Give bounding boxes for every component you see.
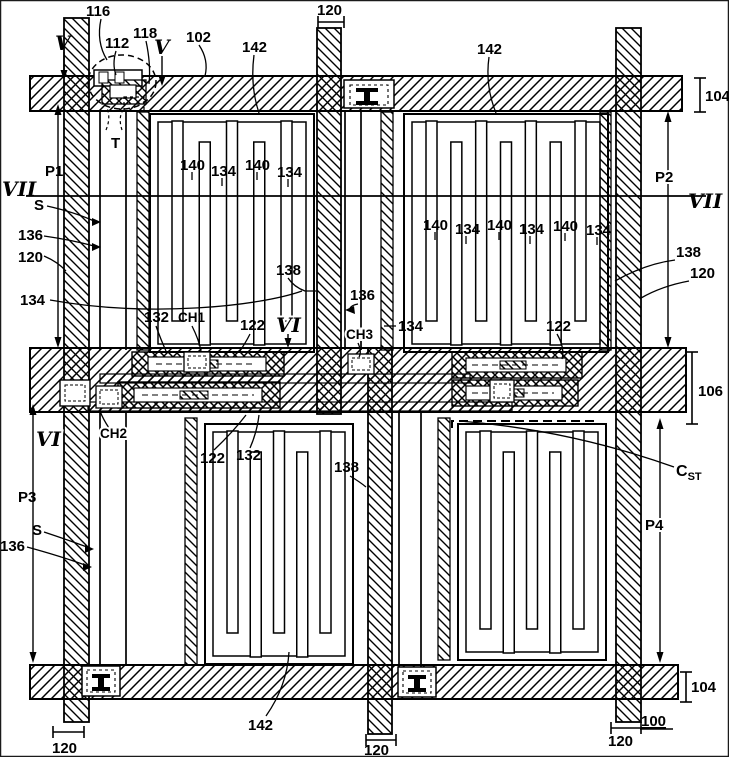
label-sec-VI-top: VI xyxy=(276,313,302,337)
gate-line-bottom xyxy=(30,665,678,699)
label-ref-140-c: 140 xyxy=(423,217,448,234)
label-ref-136-top-left: 136 xyxy=(18,227,43,244)
label-sec-V-1: V xyxy=(55,31,73,55)
label-ref-134-left: 134 xyxy=(20,292,46,309)
label-ref-120-top: 120 xyxy=(317,2,342,19)
label-ref-138-right: 138 xyxy=(676,244,701,261)
contact-pad xyxy=(60,380,90,406)
label-ref-140-d: 140 xyxy=(487,217,512,234)
contact-hole xyxy=(490,380,514,402)
tft-array-plan-view-drawing: 116112118102142120142104VVTP1P2VIIVIIS13… xyxy=(0,0,729,757)
data-line-mid-top xyxy=(317,28,341,414)
data-line-right xyxy=(616,28,641,722)
label-ref-136-bottom: 136 xyxy=(0,538,25,555)
label-ref-104-bottom: 104 xyxy=(691,679,717,696)
label-ref-140-e: 140 xyxy=(553,218,578,235)
label-ref-134-b: 134 xyxy=(277,164,303,181)
data-line-mid-bottom xyxy=(368,348,392,734)
tft-top-mid xyxy=(344,80,394,108)
label-ref-134-d: 134 xyxy=(519,221,545,238)
label-ref-116: 116 xyxy=(86,3,110,20)
label-ref-122-bottom: 122 xyxy=(200,450,225,467)
label-ref-134-center: 134 xyxy=(398,318,424,335)
label-ref-P1: P1 xyxy=(45,163,63,180)
tft-bottom-left xyxy=(82,666,120,696)
label-ref-P3: P3 xyxy=(18,489,36,506)
label-ref-140-b: 140 xyxy=(245,157,270,174)
label-ref-102: 102 xyxy=(186,29,211,46)
label-ref-T: T xyxy=(111,135,120,152)
storage-capacitor-stack xyxy=(452,380,578,406)
label-ref-106: 106 xyxy=(698,383,723,400)
label-sec-VII-right: VII xyxy=(688,189,723,213)
label-ref-120-right: 120 xyxy=(690,265,715,282)
label-ref-120-left: 120 xyxy=(18,249,43,266)
data-line-left xyxy=(64,18,89,722)
label-ref-P2: P2 xyxy=(655,169,673,186)
tft-bottom-mid xyxy=(398,667,436,697)
label-ref-132-top: 132 xyxy=(144,309,169,326)
label-ref-122-right: 122 xyxy=(546,318,571,335)
label-ref-140-a: 140 xyxy=(180,157,205,174)
comb-electrode xyxy=(205,424,353,664)
storage-capacitor-stack xyxy=(118,382,280,408)
label-ref-P4: P4 xyxy=(645,517,664,534)
label-ref-S-bottom: S xyxy=(32,522,42,539)
contact-hole-ch3 xyxy=(348,354,374,374)
label-ref-134-a: 134 xyxy=(211,163,237,180)
label-sec-VII-left: VII xyxy=(2,177,37,201)
label-ref-134-c: 134 xyxy=(455,221,481,238)
label-ref-CH1: CH1 xyxy=(178,310,205,325)
label-ref-112: 112 xyxy=(105,35,129,52)
label-ref-122-top: 122 xyxy=(240,317,265,334)
contact-hole-ch2 xyxy=(96,386,122,408)
label-ref-CH3: CH3 xyxy=(346,327,373,342)
label-ref-136-center: 136 xyxy=(350,287,375,304)
label-ref-142-top-left: 142 xyxy=(242,39,267,56)
patent-figure-page: 116112118102142120142104VVTP1P2VIIVIIS13… xyxy=(0,0,729,757)
label-ref-142-bottom: 142 xyxy=(248,717,273,734)
label-ref-CH2: CH2 xyxy=(100,426,127,441)
label-ref-142-top-right: 142 xyxy=(477,41,502,58)
label-ref-138-center: 138 xyxy=(276,262,301,279)
label-ref-132-bottom: 132 xyxy=(236,447,261,464)
label-ref-120-bottom-mid: 120 xyxy=(364,742,389,757)
label-ref-100: 100 xyxy=(641,713,666,730)
label-ref-104-top: 104 xyxy=(705,88,729,105)
comb-electrode xyxy=(458,424,606,660)
contact-hole-ch1 xyxy=(184,352,210,372)
label-ref-138-bottom: 138 xyxy=(334,459,359,476)
label-ref-120-bottom-right: 120 xyxy=(608,733,633,750)
label-ref-S-top: S xyxy=(34,197,44,214)
label-ref-134-e: 134 xyxy=(586,222,612,239)
label-ref-120-bottom-left: 120 xyxy=(52,740,77,757)
label-sec-VI-bottom: VI xyxy=(36,427,62,451)
label-sec-V-2: V xyxy=(154,35,172,59)
